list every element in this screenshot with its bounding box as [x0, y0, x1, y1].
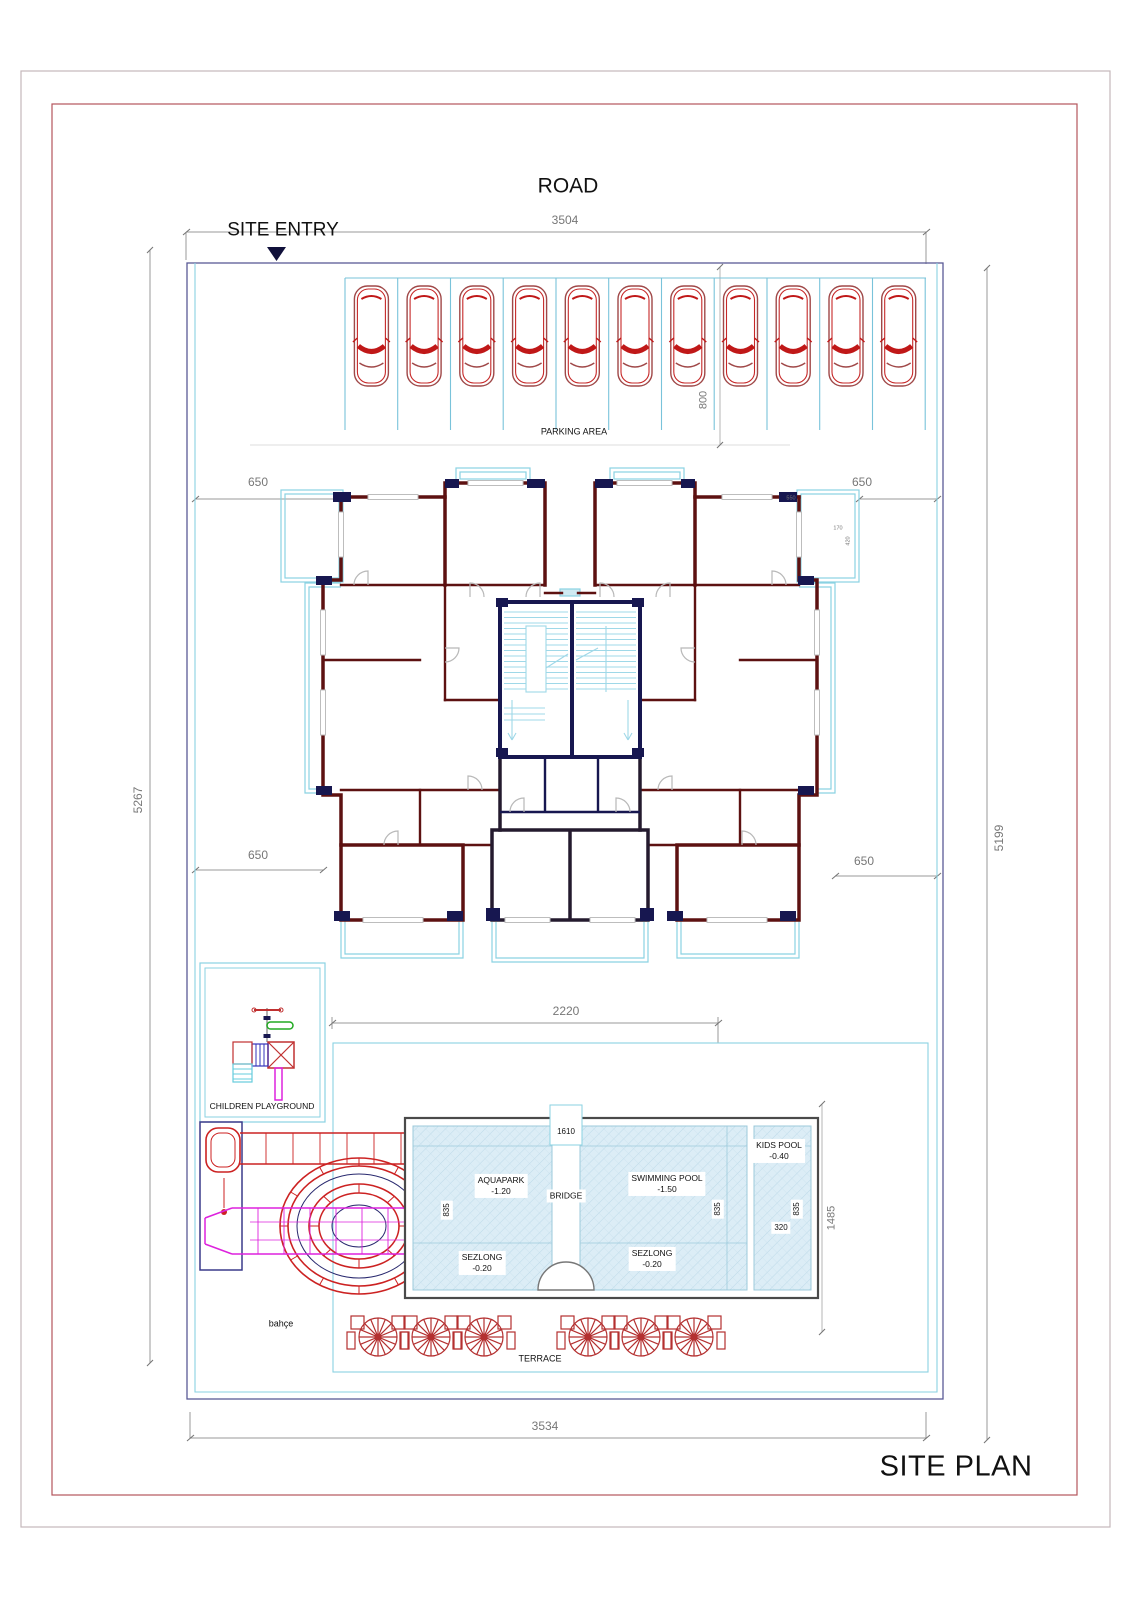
car-icon: [828, 286, 865, 386]
dim-kids-width: 320: [771, 1222, 790, 1234]
car-icon: [617, 286, 654, 386]
dim-left-height: 5267: [132, 787, 144, 814]
dim-basin-left: 835: [441, 1200, 453, 1219]
dim-balcony-width: 550: [786, 496, 795, 502]
site-plan-sheet: ROAD 3504 SITE ENTRY PARKING AREA 800 65…: [0, 0, 1131, 1600]
dim-setback-bottom-right: 650: [854, 855, 874, 867]
swimming-pool-label: SWIMMING POOL -1.50: [628, 1172, 705, 1196]
road-label: ROAD: [538, 176, 599, 197]
sheet-title: SITE PLAN: [880, 1453, 1033, 1482]
playground-equipment-icon: [233, 1008, 294, 1100]
car-icon: [722, 286, 759, 386]
dim-kids-basin: 835: [791, 1199, 803, 1218]
kids-pool-label: KIDS POOL -0.40: [753, 1139, 805, 1163]
dim-right-height: 5199: [993, 825, 1005, 852]
car-icon: [458, 286, 495, 386]
dim-setback-top-right: 650: [852, 476, 872, 488]
sezlong-left-label: SEZLONG -0.20: [459, 1251, 506, 1275]
car-icon: [669, 286, 706, 386]
car-icon: [511, 286, 548, 386]
terrace-tables: [347, 1316, 725, 1356]
car-icon: [406, 286, 443, 386]
dim-pool-length: 1485: [827, 1206, 838, 1230]
dim-road-width: 3504: [552, 214, 579, 226]
parked-cars: [353, 286, 917, 386]
children-playground-label: CHILDREN PLAYGROUND: [210, 1102, 315, 1111]
bridge-label: BRIDGE: [547, 1189, 586, 1202]
dim-basin-right: 835: [712, 1199, 724, 1218]
building-plan: [281, 468, 859, 962]
dim-bridge-top: 1610: [554, 1126, 578, 1138]
dim-balcony-d1: 170: [833, 526, 842, 532]
center-walls: [492, 757, 648, 920]
dim-balcony-d2: 420: [846, 536, 852, 545]
dim-setback-top-left: 650: [248, 476, 268, 488]
car-icon: [564, 286, 601, 386]
site-entry-arrow-icon: [267, 247, 286, 261]
parking-area-label: PARKING AREA: [541, 428, 607, 437]
dim-setback-bottom-left: 650: [248, 849, 268, 861]
sheet-border-frames: [21, 71, 1110, 1527]
terrace-label: TERRACE: [518, 1355, 561, 1364]
site-entry-label: SITE ENTRY: [227, 221, 339, 240]
dim-parking-depth: 800: [699, 391, 710, 409]
bahce-label: bahçe: [269, 1320, 294, 1329]
car-icon: [353, 286, 390, 386]
sezlong-right-label: SEZLONG -0.20: [629, 1247, 676, 1271]
dim-building-width: 2220: [553, 1005, 580, 1017]
stair-core: [500, 602, 640, 812]
floor-plan-svg: [0, 0, 1131, 1600]
children-playground: [200, 963, 325, 1122]
wall-corner-blocks: [316, 479, 814, 921]
dim-bottom-width: 3534: [532, 1420, 559, 1432]
aquapark-label: AQUAPARK -1.20: [475, 1174, 528, 1198]
car-icon: [880, 286, 917, 386]
car-icon: [775, 286, 812, 386]
